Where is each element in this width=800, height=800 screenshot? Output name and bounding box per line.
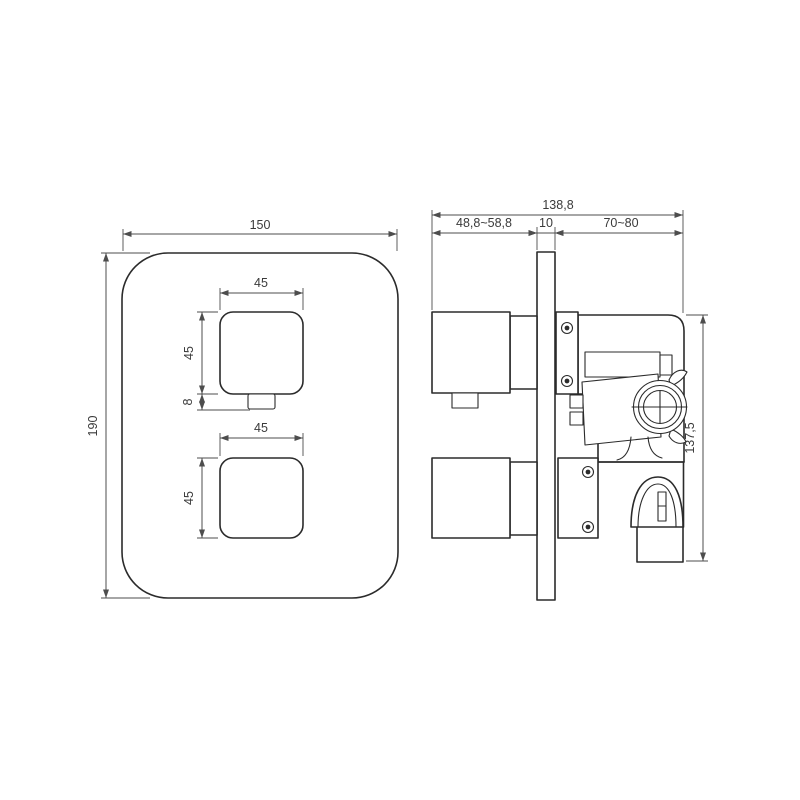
dim-label-nub-height: 8 <box>181 398 195 405</box>
side-top-handle-base <box>510 316 537 389</box>
dim-label-top-handle-width: 45 <box>254 276 268 290</box>
dim-label-top-handle-height: 45 <box>182 346 196 360</box>
technical-drawing-page: 150 190 45 45 8 45 45 <box>0 0 800 800</box>
dim-label-plate-width: 150 <box>250 218 271 232</box>
screw-icon <box>586 470 591 475</box>
side-wall-plate <box>537 252 555 600</box>
screw-icon <box>586 525 591 530</box>
dim-label-overall-depth: 138,8 <box>542 198 573 212</box>
side-bottom-handle <box>432 458 510 538</box>
side-clip-tab-2 <box>570 412 583 425</box>
dim-label-bottom-handle-height: 45 <box>182 491 196 505</box>
side-clip-tab-1 <box>570 395 583 408</box>
side-cartridge-step <box>660 355 672 375</box>
side-bottom-handle-base <box>510 462 537 535</box>
front-top-handle <box>220 312 303 394</box>
side-bottom-outlet <box>637 526 683 562</box>
dim-label-wall-thickness: 10 <box>539 216 553 230</box>
dim-label-protruding-depth: 70~80 <box>603 216 638 230</box>
front-bottom-handle <box>220 458 303 538</box>
dim-label-body-height: 137,5 <box>683 422 697 453</box>
side-top-handle-nub <box>452 393 478 408</box>
shower-valve-dimension-diagram: 150 190 45 45 8 45 45 <box>0 0 800 800</box>
side-top-handle <box>432 312 510 393</box>
dim-label-bottom-handle-width: 45 <box>254 421 268 435</box>
screw-icon <box>565 379 570 384</box>
front-top-handle-nub <box>248 394 275 409</box>
side-cartridge-top <box>585 352 660 377</box>
screw-icon <box>565 326 570 331</box>
dim-label-plate-height: 190 <box>86 416 100 437</box>
side-view <box>432 252 687 600</box>
dim-label-recessed-depth: 48,8~58,8 <box>456 216 512 230</box>
